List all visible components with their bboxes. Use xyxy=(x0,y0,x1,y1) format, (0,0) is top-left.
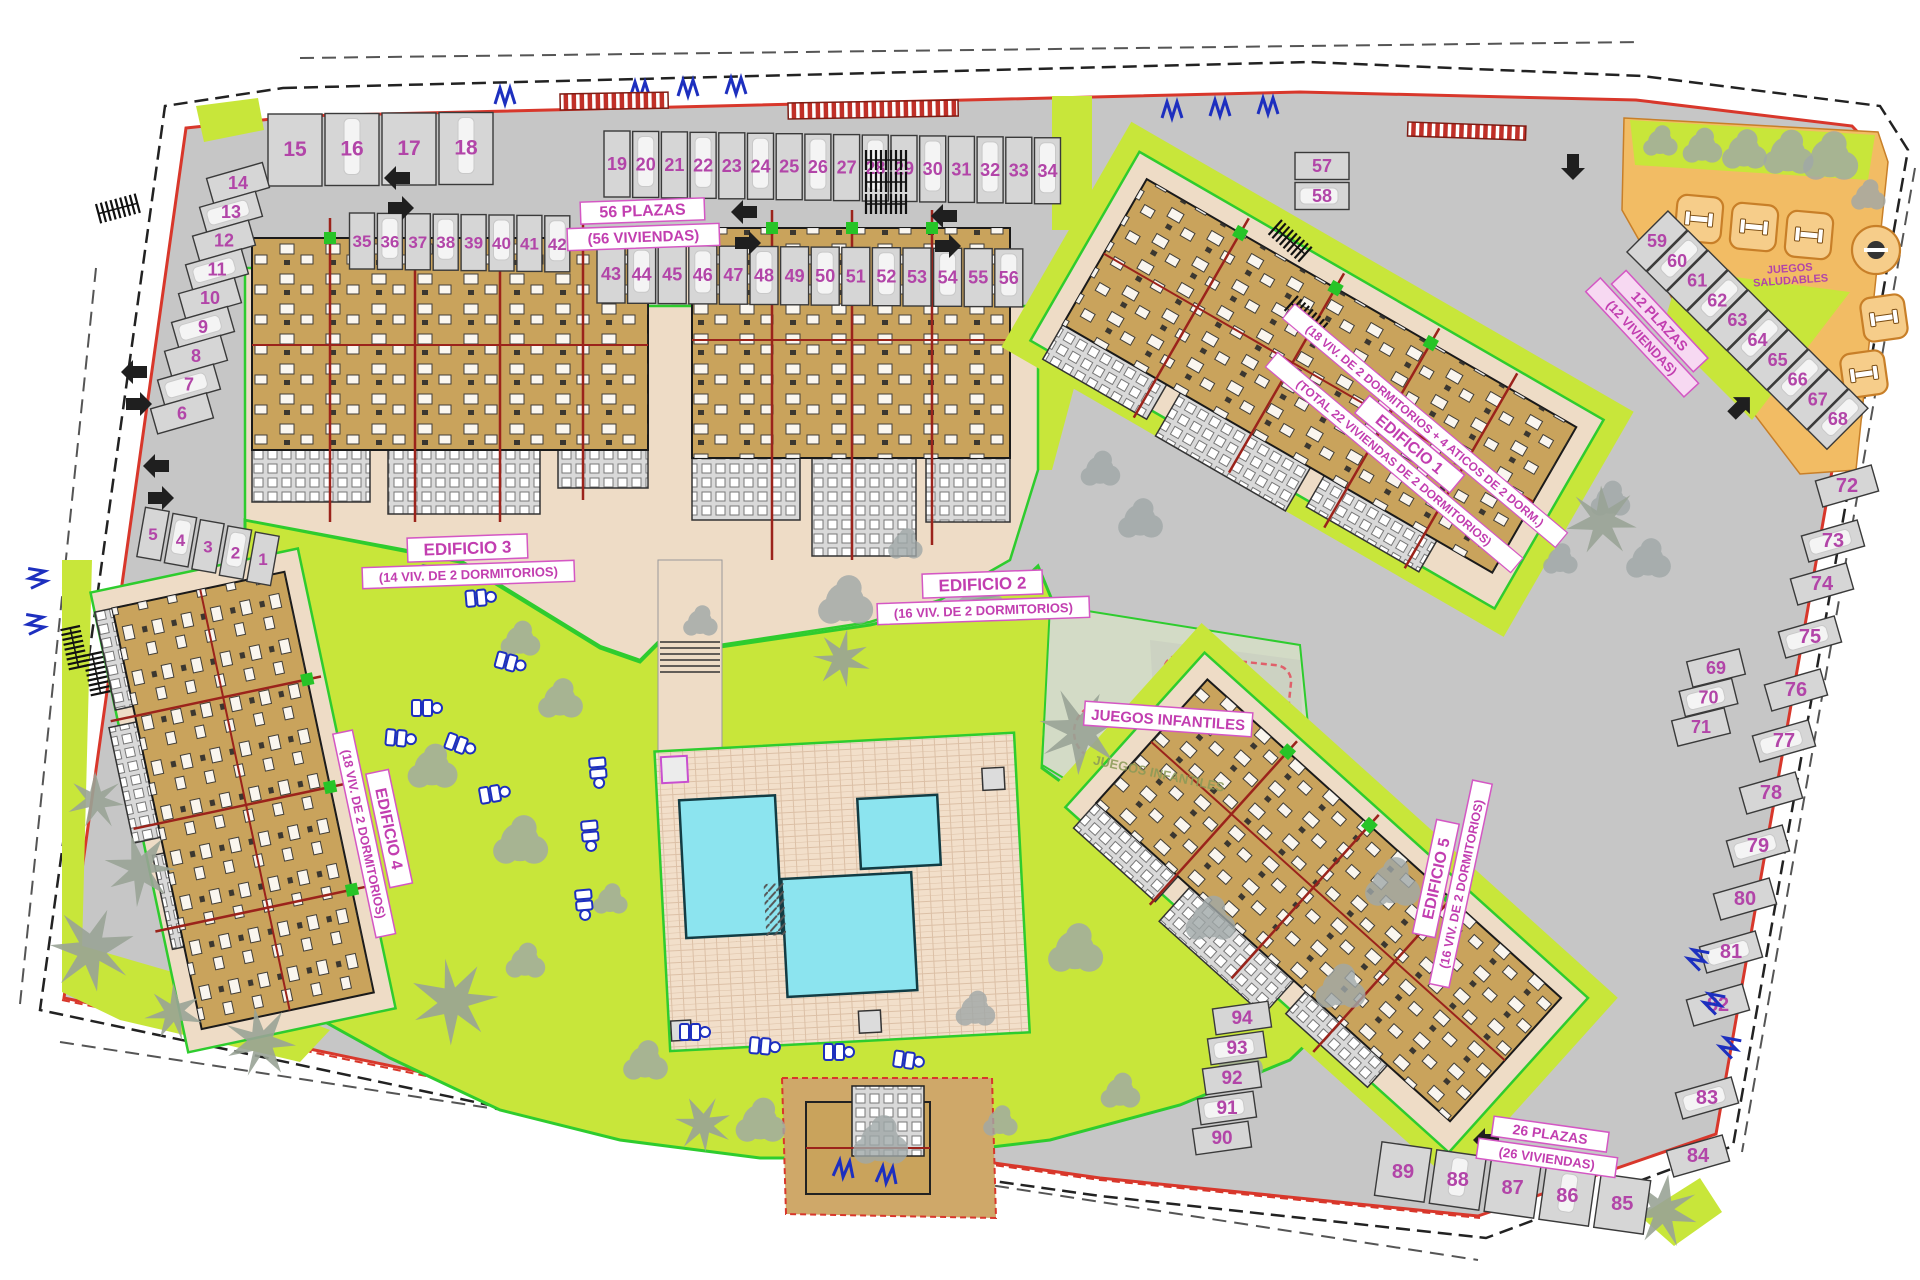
parking-stall-number: 87 xyxy=(1501,1177,1523,1199)
parking-stall-number: 46 xyxy=(693,265,713,285)
pool-children xyxy=(857,795,941,869)
parking-stall-number: 49 xyxy=(785,266,805,286)
parking-stall: 34 xyxy=(1035,138,1061,204)
fitness-station xyxy=(1784,210,1834,260)
parking-stall: 55 xyxy=(964,249,992,307)
building-name: EDIFICIO 3 xyxy=(423,537,511,559)
parking-stall-number: 56 xyxy=(999,268,1019,288)
parking-stall-number: 53 xyxy=(907,267,927,287)
parking-stall-number: 23 xyxy=(722,156,742,176)
parking-stall-number: 59 xyxy=(1647,231,1667,251)
parking-stall-number: 80 xyxy=(1734,888,1756,910)
parking-stall-number: 77 xyxy=(1773,730,1795,752)
canopy-marker-icon xyxy=(26,612,45,634)
parking-stall-number: 90 xyxy=(1211,1128,1232,1149)
parking-stall-number: 12 xyxy=(214,231,234,251)
parking-stall: 31 xyxy=(948,136,974,202)
sun-lounger-icon xyxy=(412,700,442,716)
parking-stall-number: 57 xyxy=(1312,156,1332,176)
parking-stall-number: 25 xyxy=(779,157,799,177)
parking-stall: 18 xyxy=(439,113,493,185)
parking-stall-number: 70 xyxy=(1698,688,1718,708)
parking-stall: 39 xyxy=(461,215,486,271)
parking-stall-number: 15 xyxy=(283,138,307,161)
parking-stall-number: 32 xyxy=(980,160,1000,180)
fitness-station xyxy=(1852,226,1900,274)
parking-stall-number: 81 xyxy=(1720,941,1742,963)
parking-stall-number: 44 xyxy=(632,264,652,284)
parking-stall: 16 xyxy=(325,114,379,186)
pool-secondary xyxy=(781,872,917,997)
parking-stall: 33 xyxy=(1006,137,1032,203)
parking-stall: 46 xyxy=(689,246,717,304)
parking-stall: 45 xyxy=(658,246,686,304)
fitness-station xyxy=(1859,293,1909,343)
parking-stall-number: 65 xyxy=(1768,350,1788,370)
building-name: EDIFICIO 2 xyxy=(938,573,1026,595)
parking-stall-number: 9 xyxy=(198,317,208,337)
parking-stall-number: 26 xyxy=(808,157,828,177)
site-plan: 1516171819202122232425262728293031323334… xyxy=(0,0,1920,1280)
parking-stall-number: 64 xyxy=(1747,330,1767,350)
parking-summary-line1: 56 PLAZAS xyxy=(599,201,686,221)
parking-stall-number: 45 xyxy=(662,265,682,285)
parking-stall-number: 74 xyxy=(1811,573,1834,595)
parking-stall-number: 30 xyxy=(923,159,943,179)
parking-stall: 40 xyxy=(489,215,514,271)
parking-stall-number: 27 xyxy=(837,158,857,178)
parking-stall-number: 51 xyxy=(846,266,866,286)
parking-stall-number: 92 xyxy=(1221,1068,1242,1089)
parking-stall: 42 xyxy=(545,216,570,272)
parking-stall-number: 68 xyxy=(1828,409,1848,429)
canopy-marker-icon xyxy=(28,566,47,588)
parking-stall: 44 xyxy=(628,245,656,303)
parking-stall: 89 xyxy=(1374,1142,1431,1202)
parking-stall-number: 71 xyxy=(1691,717,1711,737)
parking-stall-number: 6 xyxy=(177,403,187,423)
parking-stall: 32 xyxy=(977,137,1003,203)
parking-stall-number: 3 xyxy=(203,537,212,556)
parking-stall-number: 52 xyxy=(876,267,896,287)
parking-stall-number: 37 xyxy=(408,233,427,252)
parking-stall-number: 84 xyxy=(1687,1145,1710,1167)
parking-stall-number: 31 xyxy=(951,159,971,179)
parking-stall-number: 24 xyxy=(750,156,770,176)
parking-stall-number: 34 xyxy=(1037,161,1057,181)
parking-stall-number: 86 xyxy=(1556,1185,1578,1207)
parking-stall-number: 35 xyxy=(353,232,372,251)
parking-stall: 49 xyxy=(781,247,809,305)
parking-stall-number: 20 xyxy=(636,154,656,174)
parking-stall: 54 xyxy=(934,248,962,306)
parking-stall: 85 xyxy=(1594,1174,1651,1234)
parking-stall: 19 xyxy=(604,131,630,197)
parking-stall: 48 xyxy=(750,247,778,305)
canopy-marker-icon xyxy=(678,80,698,96)
parking-stall: 52 xyxy=(872,248,900,306)
parking-stall-number: 91 xyxy=(1216,1098,1238,1119)
bike-rack-icon xyxy=(96,194,140,224)
bike-rack-icon xyxy=(866,172,906,192)
parking-stall-number: 66 xyxy=(1788,370,1808,390)
parking-stall-number: 16 xyxy=(340,138,363,161)
bike-rack-icon xyxy=(866,150,906,170)
parking-stall-number: 2 xyxy=(231,544,240,563)
parking-stall: 21 xyxy=(661,132,687,198)
parking-stall-number: 75 xyxy=(1799,626,1821,648)
parking-stall-number: 36 xyxy=(380,232,399,251)
parking-stall-number: 14 xyxy=(228,173,248,193)
parking-stall: 87 xyxy=(1484,1158,1541,1218)
entrance-canopy xyxy=(560,92,668,110)
parking-stall: 50 xyxy=(811,247,839,305)
parking-stall-number: 48 xyxy=(754,266,774,286)
parking-stall-number: 8 xyxy=(191,346,201,366)
canopy-marker-icon xyxy=(495,88,515,104)
parking-stall: 35 xyxy=(350,213,375,269)
parking-stall-number: 42 xyxy=(548,235,567,254)
parking-stall-number: 78 xyxy=(1760,782,1782,804)
parking-stall-number: 40 xyxy=(492,234,511,253)
parking-stall: 27 xyxy=(834,135,860,201)
parking-stall: 23 xyxy=(719,133,745,199)
parking-stall-number: 50 xyxy=(815,266,835,286)
parking-stall: 41 xyxy=(517,215,542,271)
parking-stall-number: 41 xyxy=(520,234,539,253)
site-plan-svg: 1516171819202122232425262728293031323334… xyxy=(0,0,1920,1280)
parking-stall: 53 xyxy=(903,248,931,306)
parking-stall: 86 xyxy=(1539,1166,1596,1226)
parking-stall: 36 xyxy=(377,213,402,269)
parking-stall-number: 58 xyxy=(1312,186,1332,206)
parking-stall-number: 69 xyxy=(1706,658,1726,678)
canopy-marker-icon xyxy=(726,78,746,94)
parking-stall: 47 xyxy=(719,246,747,304)
entrance-canopy xyxy=(788,100,958,119)
parking-stall: 24 xyxy=(748,133,774,199)
parking-stall-number: 85 xyxy=(1611,1193,1633,1215)
parking-stall: 56 xyxy=(995,249,1023,307)
parking-stall-number: 55 xyxy=(968,268,988,288)
parking-stall: 25 xyxy=(776,134,802,200)
parking-stall-number: 88 xyxy=(1447,1169,1469,1191)
parking-stall: 22 xyxy=(690,132,716,198)
parking-stall-number: 39 xyxy=(464,234,483,253)
parking-stall-number: 4 xyxy=(176,531,186,550)
parking-stall-number: 89 xyxy=(1392,1161,1414,1183)
parking-stall-number: 11 xyxy=(207,259,226,279)
parking-stall: 58 xyxy=(1295,183,1349,210)
parking-stall-number: 33 xyxy=(1009,160,1029,180)
traffic-arrow-icon xyxy=(121,360,147,384)
fitness-station xyxy=(1729,202,1779,252)
parking-stall-number: 93 xyxy=(1226,1038,1247,1059)
walkway-stairs xyxy=(658,560,722,756)
parking-stall-number: 38 xyxy=(436,233,455,252)
sun-lounger-icon xyxy=(680,1024,710,1040)
parking-stall: 15 xyxy=(268,114,322,186)
parking-stall-number: 13 xyxy=(221,202,241,222)
parking-stall-number: 62 xyxy=(1707,290,1727,310)
parking-stall-number: 7 xyxy=(184,375,194,395)
parking-stall-number: 94 xyxy=(1231,1008,1253,1029)
parking-stall: 51 xyxy=(842,247,870,305)
bike-rack-icon xyxy=(866,194,906,214)
parking-stall: 30 xyxy=(920,136,946,202)
parking-stall-number: 61 xyxy=(1687,271,1707,291)
parking-stall-number: 18 xyxy=(454,137,478,160)
parking-stall-number: 79 xyxy=(1747,835,1769,857)
parking-stall-number: 19 xyxy=(607,154,627,174)
parking-stall-number: 72 xyxy=(1836,475,1858,497)
parking-stall-number: 43 xyxy=(601,264,621,284)
parking-stall-number: 73 xyxy=(1822,530,1844,552)
parking-stall-number: 1 xyxy=(258,550,267,569)
parking-stall-number: 76 xyxy=(1785,679,1807,701)
parking-stall-number: 60 xyxy=(1667,251,1687,271)
parking-stall-number: 17 xyxy=(397,137,420,160)
parking-stall-number: 21 xyxy=(664,155,684,175)
parking-stall: 57 xyxy=(1295,153,1349,180)
parking-stall-number: 5 xyxy=(148,525,157,544)
sun-lounger-icon xyxy=(824,1044,854,1060)
parking-stall-number: 22 xyxy=(693,155,713,175)
parking-stall-number: 10 xyxy=(200,288,220,308)
parking-stall: 43 xyxy=(597,245,625,303)
parking-stall-number: 83 xyxy=(1696,1087,1718,1109)
parking-stall: 20 xyxy=(633,131,659,197)
parking-stall-number: 63 xyxy=(1727,310,1747,330)
parking-stall: 37 xyxy=(405,214,430,270)
parking-stall-number: 47 xyxy=(723,265,743,285)
pool-ramp xyxy=(764,883,787,936)
parking-stall-number: 54 xyxy=(938,267,958,287)
parking-stall-number: 67 xyxy=(1808,389,1828,409)
parking-stall: 38 xyxy=(433,214,458,270)
parking-stall: 26 xyxy=(805,134,831,200)
